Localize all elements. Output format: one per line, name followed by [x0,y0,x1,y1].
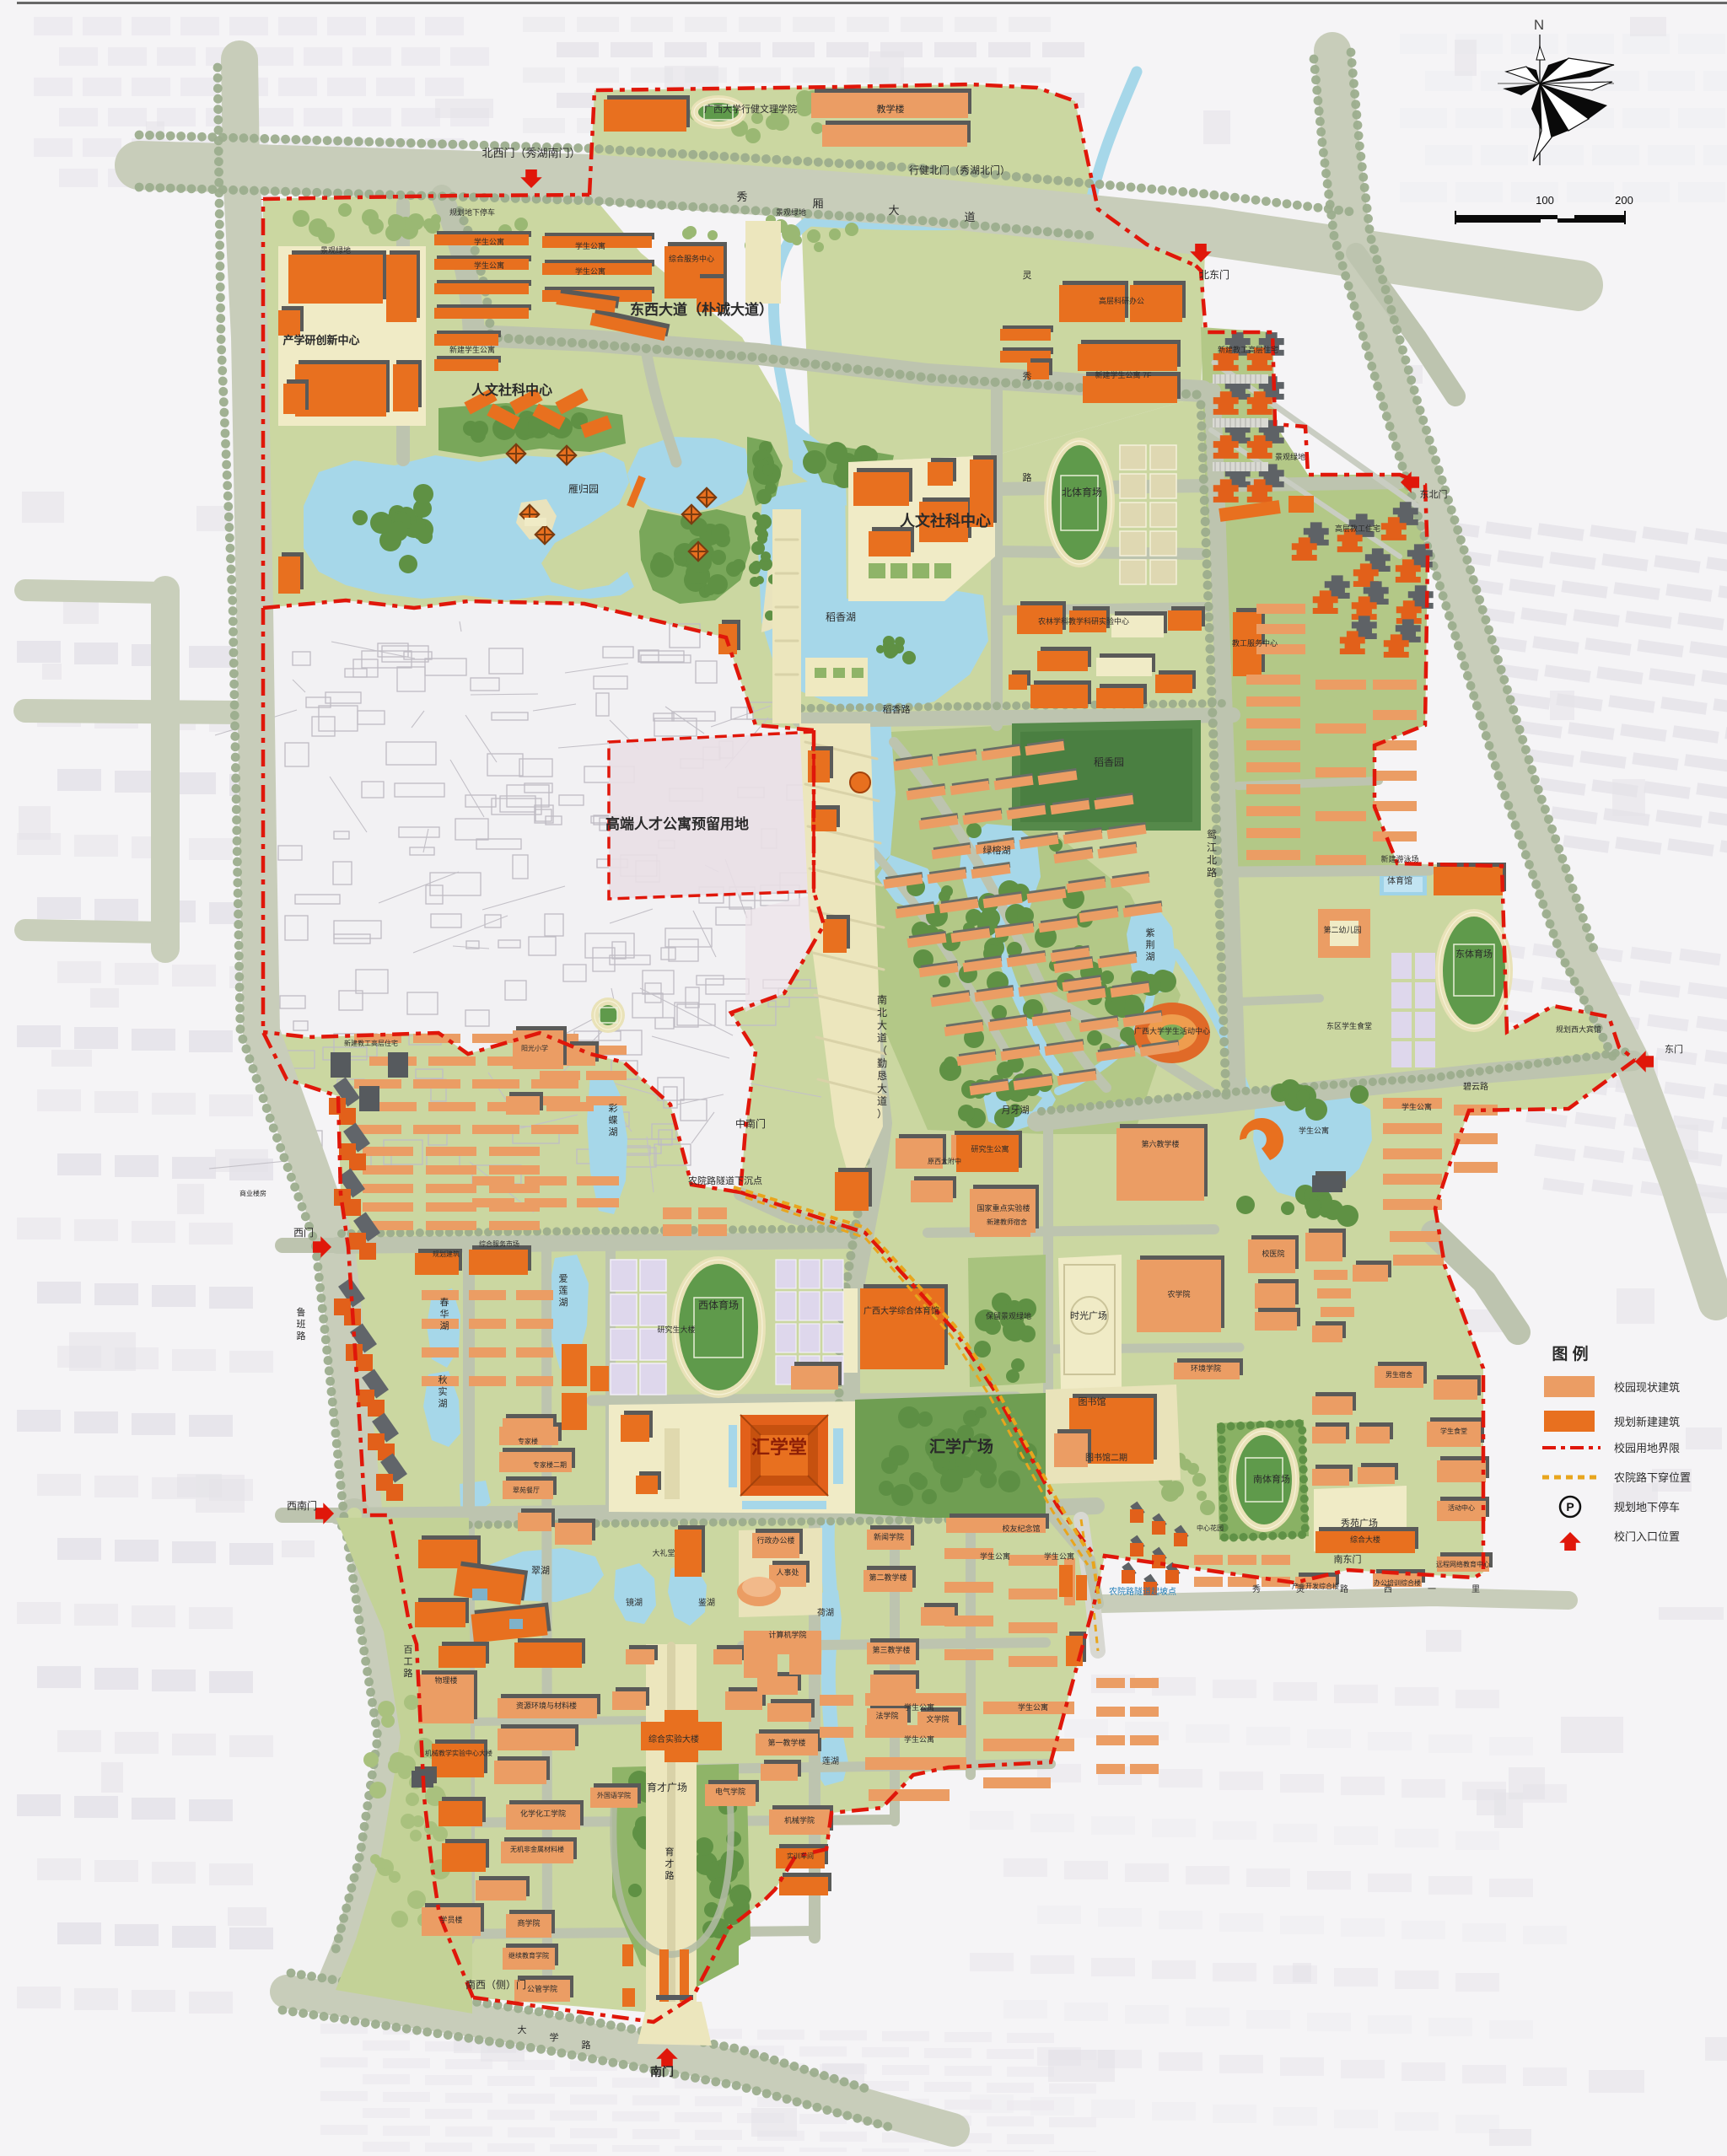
svg-text:时光广场: 时光广场 [1070,1309,1107,1321]
svg-text:农院路隧道起坡点: 农院路隧道起坡点 [1109,1586,1176,1597]
svg-text:东西大道（朴诚大道）: 东西大道（朴诚大道） [630,301,773,318]
svg-text:机械学院: 机械学院 [784,1815,815,1825]
svg-text:湖: 湖 [438,1398,448,1409]
svg-text:学生公寓: 学生公寓 [474,237,504,246]
svg-text:道: 道 [877,1095,887,1107]
svg-text:莲: 莲 [559,1285,568,1296]
svg-text:商学院: 商学院 [517,1918,540,1927]
svg-text:规划新建建筑: 规划新建建筑 [1614,1416,1680,1428]
svg-text:产学研创新中心: 产学研创新中心 [282,334,359,347]
svg-text:汇学广场: 汇学广场 [929,1437,993,1456]
svg-text:图书馆: 图书馆 [1079,1395,1106,1407]
svg-text:西门: 西门 [293,1226,314,1239]
svg-text:育: 育 [665,1846,675,1858]
svg-text:学生食堂: 学生食堂 [1440,1427,1467,1435]
svg-text:路: 路 [1023,472,1032,483]
svg-text:景观绿地: 景观绿地 [320,245,351,255]
svg-text:大: 大 [877,1083,887,1094]
svg-text:研究生大楼: 研究生大楼 [657,1325,695,1334]
svg-text:新建学生公寓: 新建学生公寓 [449,345,495,354]
svg-text:南东门: 南东门 [1334,1553,1362,1565]
svg-text:百: 百 [404,1645,413,1655]
svg-text:路: 路 [1207,866,1217,879]
svg-text:中南门: 中南门 [735,1117,766,1130]
svg-text:农学院: 农学院 [1167,1289,1190,1298]
svg-text:远程网络教育中心: 远程网络教育中心 [1436,1560,1490,1568]
svg-text:规划地下停车: 规划地下停车 [449,207,495,217]
svg-text:华: 华 [440,1308,449,1320]
svg-text:道: 道 [877,1032,887,1044]
svg-text:学生公寓: 学生公寓 [474,261,504,270]
svg-text:化学化工学院: 化学化工学院 [520,1809,566,1818]
svg-text:体育馆: 体育馆 [1387,875,1412,886]
svg-text:第六教学楼: 第六教学楼 [1141,1139,1179,1148]
svg-text:新建教工高层住宅: 新建教工高层住宅 [1218,345,1278,354]
svg-text:班: 班 [297,1319,306,1330]
svg-text:活动中心: 活动中心 [1448,1503,1475,1512]
svg-text:实训车间: 实训车间 [787,1852,814,1860]
svg-text:200: 200 [1615,194,1633,207]
svg-text:雁归园: 雁归园 [568,483,599,495]
svg-text:湖: 湖 [609,1126,618,1137]
svg-text:莲湖: 莲湖 [822,1756,839,1766]
svg-text:镜湖: 镜湖 [626,1597,643,1608]
svg-text:物理楼: 物理楼 [434,1675,457,1685]
svg-text:湖: 湖 [559,1297,568,1308]
svg-text:鲁: 鲁 [297,1306,306,1318]
svg-text:爱: 爱 [559,1273,568,1284]
svg-text:公管学院: 公管学院 [527,1984,557,1993]
svg-text:育才广场: 育才广场 [647,1781,687,1793]
svg-text:产业开发综合楼: 产业开发综合楼 [1292,1582,1339,1590]
svg-text:恳: 恳 [877,1070,887,1082]
svg-text:高层科研办公: 高层科研办公 [1099,296,1144,305]
svg-text:西南门: 西南门 [287,1499,317,1512]
svg-text:北体育场: 北体育场 [1062,486,1102,498]
svg-text:行健北门（秀湖北门）: 行健北门（秀湖北门） [909,164,1010,176]
svg-text:机械教学实验中心大楼: 机械教学实验中心大楼 [425,1749,492,1757]
svg-text:校园用地界限: 校园用地界限 [1614,1442,1680,1454]
svg-text:农林学科教学科研实验中心: 农林学科教学科研实验中心 [1038,616,1129,626]
svg-text:P: P [1566,1500,1574,1514]
svg-text:秀: 秀 [1252,1584,1261,1594]
svg-text:西体育场: 西体育场 [698,1298,739,1311]
svg-text:稻香路: 稻香路 [883,704,911,715]
svg-text:电气学院: 电气学院 [715,1787,745,1796]
svg-text:学生公寓: 学生公寓 [904,1734,934,1744]
svg-text:综合实验大楼: 综合实验大楼 [648,1734,699,1745]
svg-text:翠苑餐厅: 翠苑餐厅 [513,1486,540,1494]
svg-text:规划建筑: 规划建筑 [433,1250,460,1258]
svg-text:校医院: 校医院 [1262,1249,1284,1258]
svg-text:湖: 湖 [440,1320,449,1331]
svg-text:广西大学行健文理学院: 广西大学行健文理学院 [704,103,797,115]
svg-text:广西大学综合体育馆: 广西大学综合体育馆 [863,1305,939,1316]
svg-text:稻香湖: 稻香湖 [826,610,856,623]
svg-text:碧云路: 碧云路 [1463,1081,1488,1092]
svg-text:东体育场: 东体育场 [1455,948,1493,960]
svg-text:学生公寓: 学生公寓 [1018,1702,1048,1712]
svg-text:南体育场: 南体育场 [1253,1473,1290,1485]
svg-text:秀: 秀 [1023,371,1032,382]
svg-text:第一教学楼: 第一教学楼 [767,1738,805,1747]
svg-text:东门: 东门 [1665,1043,1683,1055]
svg-text:高端人才公寓预留用地: 高端人才公寓预留用地 [605,815,749,832]
svg-text:计算机学院: 计算机学院 [768,1630,806,1639]
svg-text:湖: 湖 [1146,951,1155,962]
svg-text:北: 北 [877,1007,887,1019]
svg-text:景观绿地: 景观绿地 [776,207,806,217]
svg-text:继续教育学院: 继续教育学院 [508,1951,549,1960]
svg-text:资源环境与材料楼: 资源环境与材料楼 [516,1701,577,1710]
svg-text:北西门（秀湖南门）: 北西门（秀湖南门） [482,147,580,159]
svg-text:路: 路 [1340,1583,1348,1594]
svg-text:新建学生公寓 7F: 新建学生公寓 7F [1095,370,1152,379]
svg-text:规划西大宾馆: 规划西大宾馆 [1556,1024,1601,1034]
svg-text:大: 大 [877,1019,887,1031]
svg-text:学生公寓: 学生公寓 [1402,1102,1432,1111]
svg-text:新闻学院: 新闻学院 [874,1532,904,1541]
svg-text:路: 路 [665,1870,675,1881]
svg-text:北: 北 [1207,854,1217,866]
svg-text:研究生公寓: 研究生公寓 [971,1144,1009,1153]
svg-text:第二教学楼: 第二教学楼 [869,1573,907,1582]
svg-text:外国语学院: 外国语学院 [597,1791,631,1799]
svg-text:商业楼房: 商业楼房 [239,1189,266,1197]
svg-text:厢: 厢 [812,197,823,210]
svg-text:大礼堂: 大礼堂 [652,1548,675,1557]
svg-text:实: 实 [438,1385,448,1397]
svg-text:保留景观绿地: 保留景观绿地 [986,1311,1031,1320]
svg-text:东北门: 东北门 [1420,488,1448,500]
svg-text:新建教师宿舍: 新建教师宿舍 [987,1218,1027,1226]
svg-text:灵: 灵 [1023,270,1032,281]
svg-text:大: 大 [888,204,899,217]
svg-text:汇学堂: 汇学堂 [751,1437,807,1458]
svg-text:紫: 紫 [1146,927,1155,938]
svg-text:专家楼二期: 专家楼二期 [533,1460,567,1469]
svg-text:学员楼: 学员楼 [439,1915,462,1924]
svg-text:工: 工 [404,1657,413,1667]
svg-text:学生公寓: 学生公寓 [1299,1126,1329,1135]
svg-text:蝶: 蝶 [609,1114,618,1126]
svg-text:教工服务中心: 教工服务中心 [1232,638,1278,648]
svg-text:综合大楼: 综合大楼 [1350,1535,1380,1544]
svg-text:第三教学楼: 第三教学楼 [872,1645,910,1654]
svg-text:阳光小学: 阳光小学 [521,1044,548,1052]
svg-text:学生公寓: 学生公寓 [575,266,605,276]
svg-text:农院路隧道下沉点: 农院路隧道下沉点 [688,1175,762,1186]
svg-text:100: 100 [1536,194,1554,207]
svg-text:教学楼: 教学楼 [877,103,905,115]
svg-text:南门: 南门 [650,2065,674,2078]
svg-text:秋: 秋 [438,1374,448,1385]
svg-text:人文社科中心: 人文社科中心 [900,512,991,530]
svg-text:学生公寓: 学生公寓 [904,1702,934,1712]
svg-text:南: 南 [877,993,887,1006]
svg-text:秀: 秀 [736,191,747,203]
svg-text:月牙湖: 月牙湖 [1002,1105,1030,1116]
svg-text:翠湖: 翠湖 [531,1565,550,1576]
svg-text:路: 路 [582,2040,591,2051]
svg-text:鉴湖: 鉴湖 [698,1597,715,1608]
svg-text:鸳: 鸳 [1207,828,1217,841]
svg-text:专家楼: 专家楼 [518,1437,538,1445]
svg-text:大: 大 [518,2024,527,2035]
svg-text:彩: 彩 [609,1103,618,1114]
svg-text:新建游泳场: 新建游泳场 [1380,854,1418,863]
svg-text:第二幼儿园: 第二幼儿园 [1323,925,1361,934]
svg-text:中心花园: 中心花园 [1197,1524,1224,1532]
svg-text:图 例: 图 例 [1552,1344,1588,1363]
svg-text:）: ） [877,1108,887,1120]
svg-text:广西大学学生活动中心: 广西大学学生活动中心 [1134,1026,1210,1035]
svg-text:图书馆二期: 图书馆二期 [1085,1452,1127,1463]
svg-text:N: N [1534,17,1544,33]
svg-text:新建教工高层住宅: 新建教工高层住宅 [344,1039,398,1047]
svg-text:路: 路 [404,1668,413,1679]
svg-text:秀苑广场: 秀苑广场 [1341,1517,1378,1529]
svg-text:荷湖: 荷湖 [817,1608,834,1618]
svg-text:路: 路 [297,1331,306,1341]
svg-text:景观绿地: 景观绿地 [1275,452,1305,461]
svg-text:高层教工住宅: 高层教工住宅 [1335,524,1380,533]
svg-text:法学院: 法学院 [875,1711,898,1720]
svg-text:男生宿舍: 男生宿舍 [1385,1370,1412,1379]
svg-text:学生公寓: 学生公寓 [1044,1551,1074,1561]
svg-text:南西（侧）门: 南西（侧）门 [465,1978,526,1991]
svg-text:校门入口位置: 校门入口位置 [1614,1530,1680,1543]
svg-text:绿榕湖: 绿榕湖 [983,844,1011,856]
svg-text:江: 江 [1207,841,1217,853]
svg-text:学生公寓: 学生公寓 [575,241,605,250]
svg-text:北东门: 北东门 [1199,268,1229,281]
svg-text:人文社科中心: 人文社科中心 [471,382,552,398]
svg-text:稻香园: 稻香园 [1094,756,1124,768]
svg-text:农院路下穿位置: 农院路下穿位置 [1614,1471,1691,1484]
svg-text:里: 里 [1471,1584,1480,1594]
svg-text:勤: 勤 [877,1057,887,1069]
svg-text:学生公寓: 学生公寓 [980,1551,1010,1561]
svg-text:国家重点实验楼: 国家重点实验楼 [976,1203,1030,1212]
svg-text:春: 春 [440,1297,449,1308]
svg-text:道: 道 [964,211,975,223]
svg-text:文学院: 文学院 [926,1714,949,1723]
svg-text:环境学院: 环境学院 [1191,1363,1221,1373]
svg-text:荆: 荆 [1146,939,1155,950]
svg-text:（: （ [877,1045,887,1056]
svg-text:办公培训综合楼: 办公培训综合楼 [1374,1578,1421,1587]
svg-text:一: 一 [1428,1585,1436,1594]
svg-text:人事处: 人事处 [776,1567,799,1577]
svg-text:校园现状建筑: 校园现状建筑 [1614,1381,1680,1394]
svg-text:学: 学 [550,2031,559,2043]
svg-text:综合服务市场: 综合服务市场 [479,1239,519,1248]
svg-text:无机非金属材料楼: 无机非金属材料楼 [510,1845,564,1853]
svg-text:综合服务中心: 综合服务中心 [669,254,714,263]
svg-text:行政办公楼: 行政办公楼 [756,1535,794,1545]
svg-text:才: 才 [665,1858,675,1869]
svg-text:原西大附中: 原西大附中 [928,1157,961,1165]
svg-text:规划地下停车: 规划地下停车 [1614,1501,1680,1514]
svg-text:校友纪念馆: 校友纪念馆 [1002,1524,1040,1533]
svg-text:东区学生食堂: 东区学生食堂 [1326,1021,1372,1030]
